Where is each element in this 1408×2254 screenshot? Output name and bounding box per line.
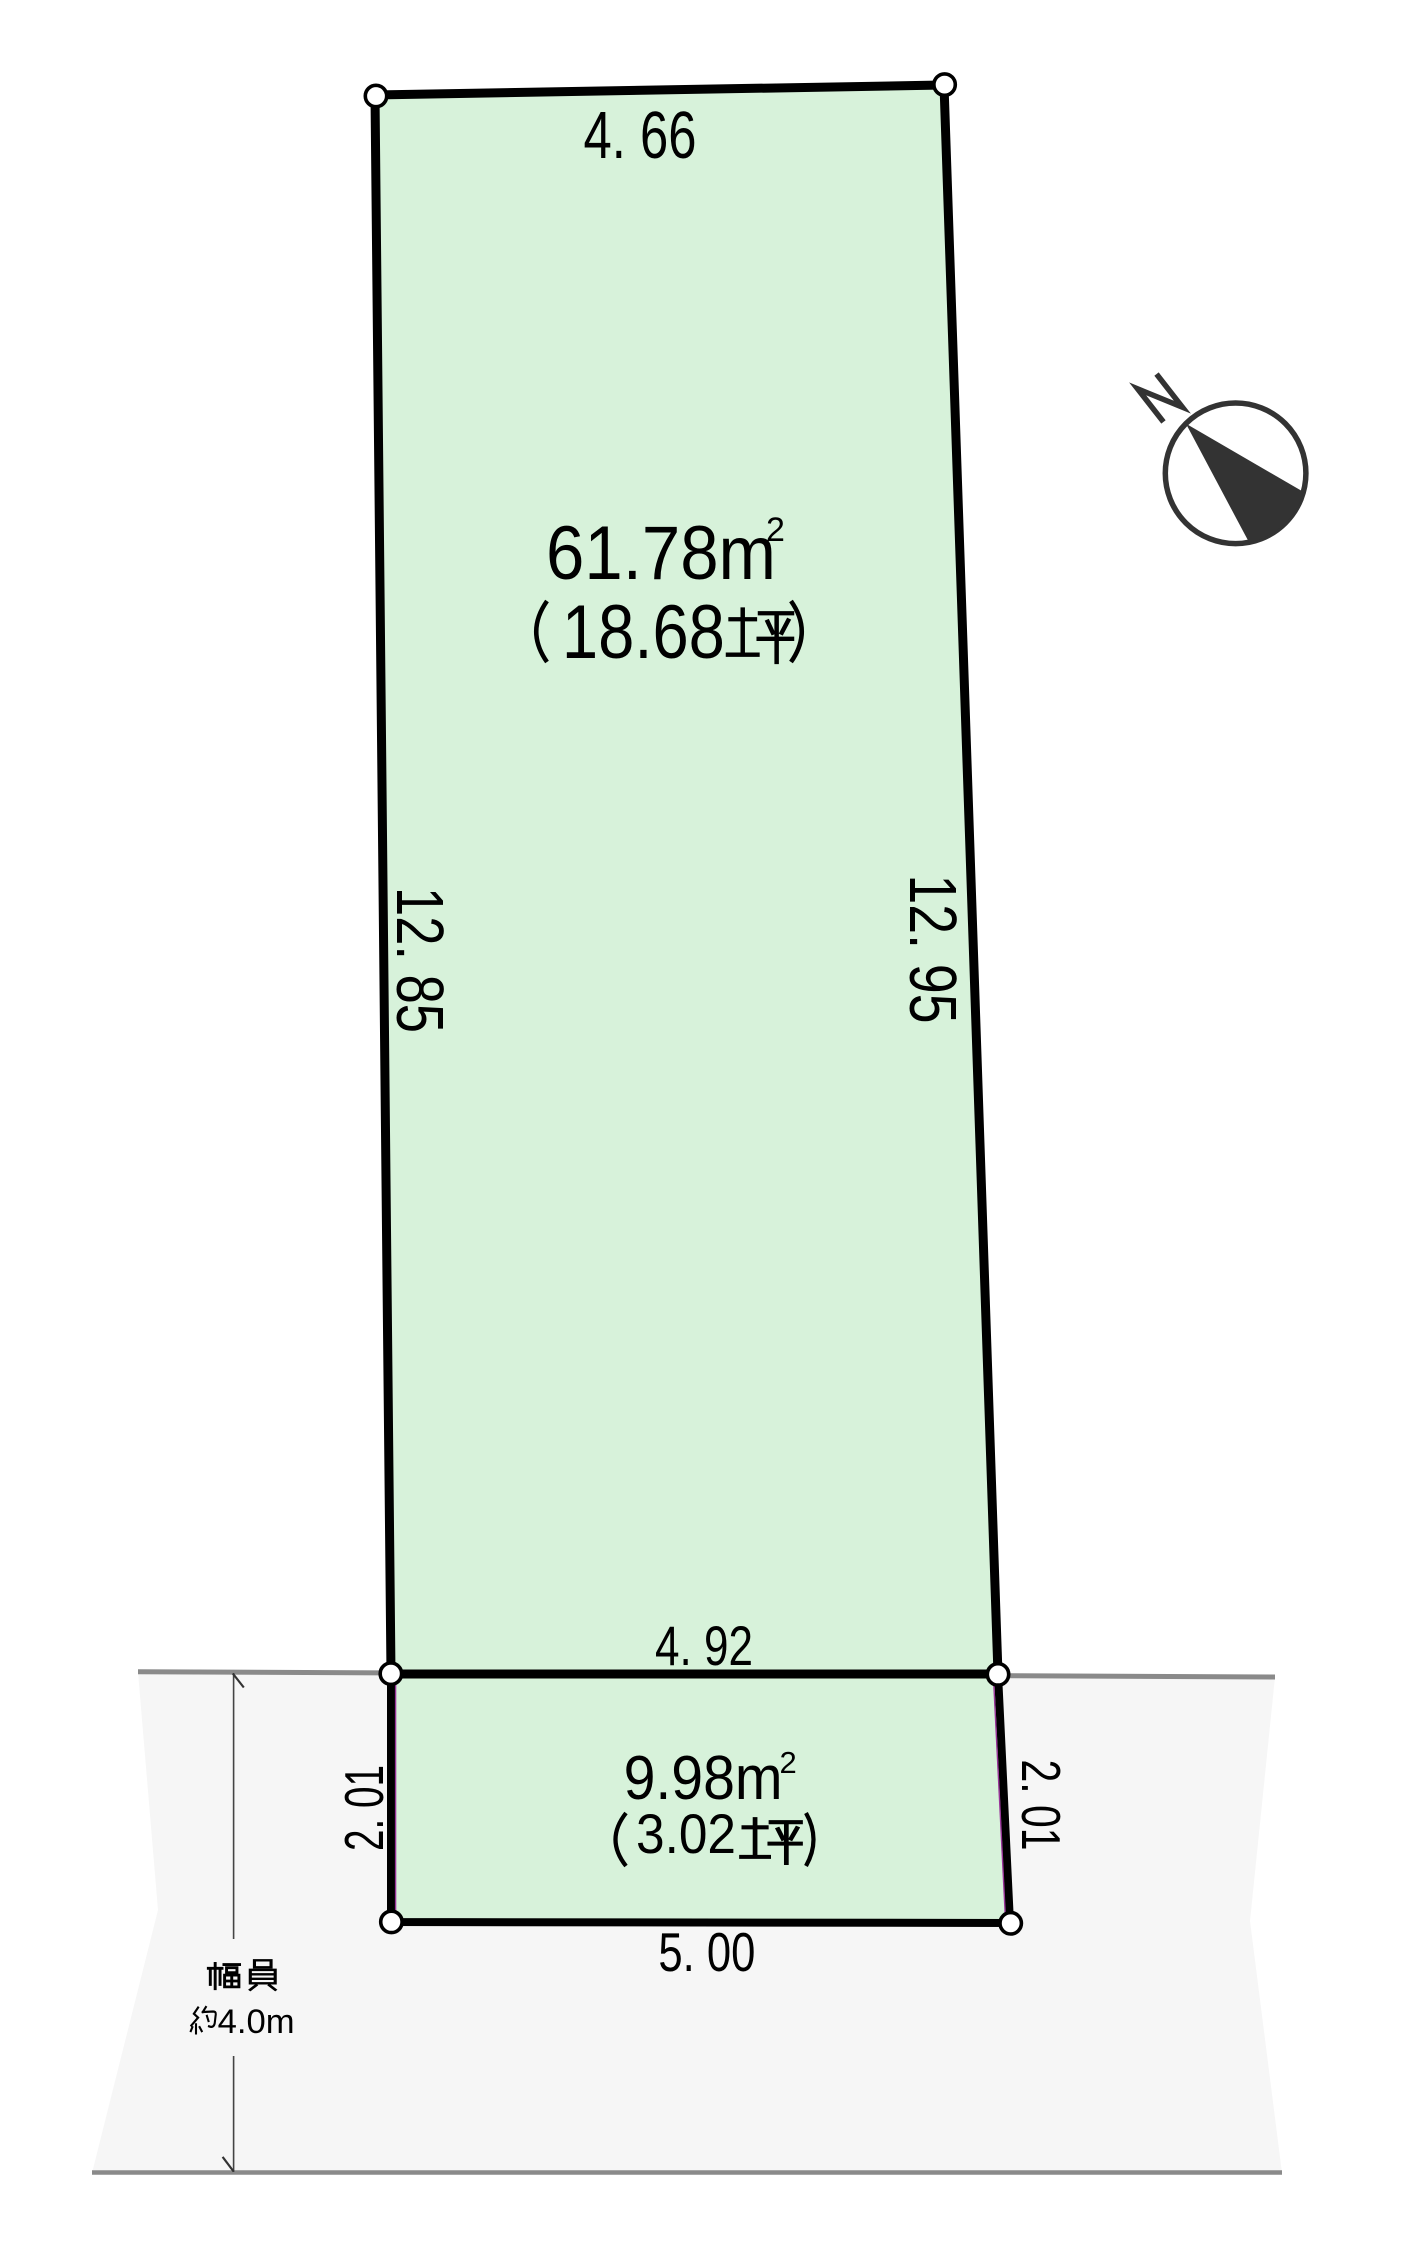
- svg-text:2. 01: 2. 01: [333, 1765, 395, 1851]
- svg-text:4.0m: 4.0m: [218, 2003, 295, 2041]
- svg-text:5. 00: 5. 00: [658, 1921, 755, 1983]
- svg-text:4. 92: 4. 92: [655, 1614, 753, 1677]
- svg-text:2: 2: [766, 511, 785, 549]
- svg-text:61.78m: 61.78m: [546, 511, 776, 596]
- svg-text:18.68: 18.68: [562, 590, 725, 675]
- svg-text:2. 01: 2. 01: [1010, 1760, 1072, 1851]
- svg-text:4. 66: 4. 66: [584, 98, 697, 173]
- svg-text:2: 2: [780, 1745, 797, 1780]
- svg-text:3.02: 3.02: [636, 1802, 736, 1865]
- svg-text:12. 95: 12. 95: [895, 875, 970, 1024]
- svg-text:12. 85: 12. 85: [382, 887, 457, 1033]
